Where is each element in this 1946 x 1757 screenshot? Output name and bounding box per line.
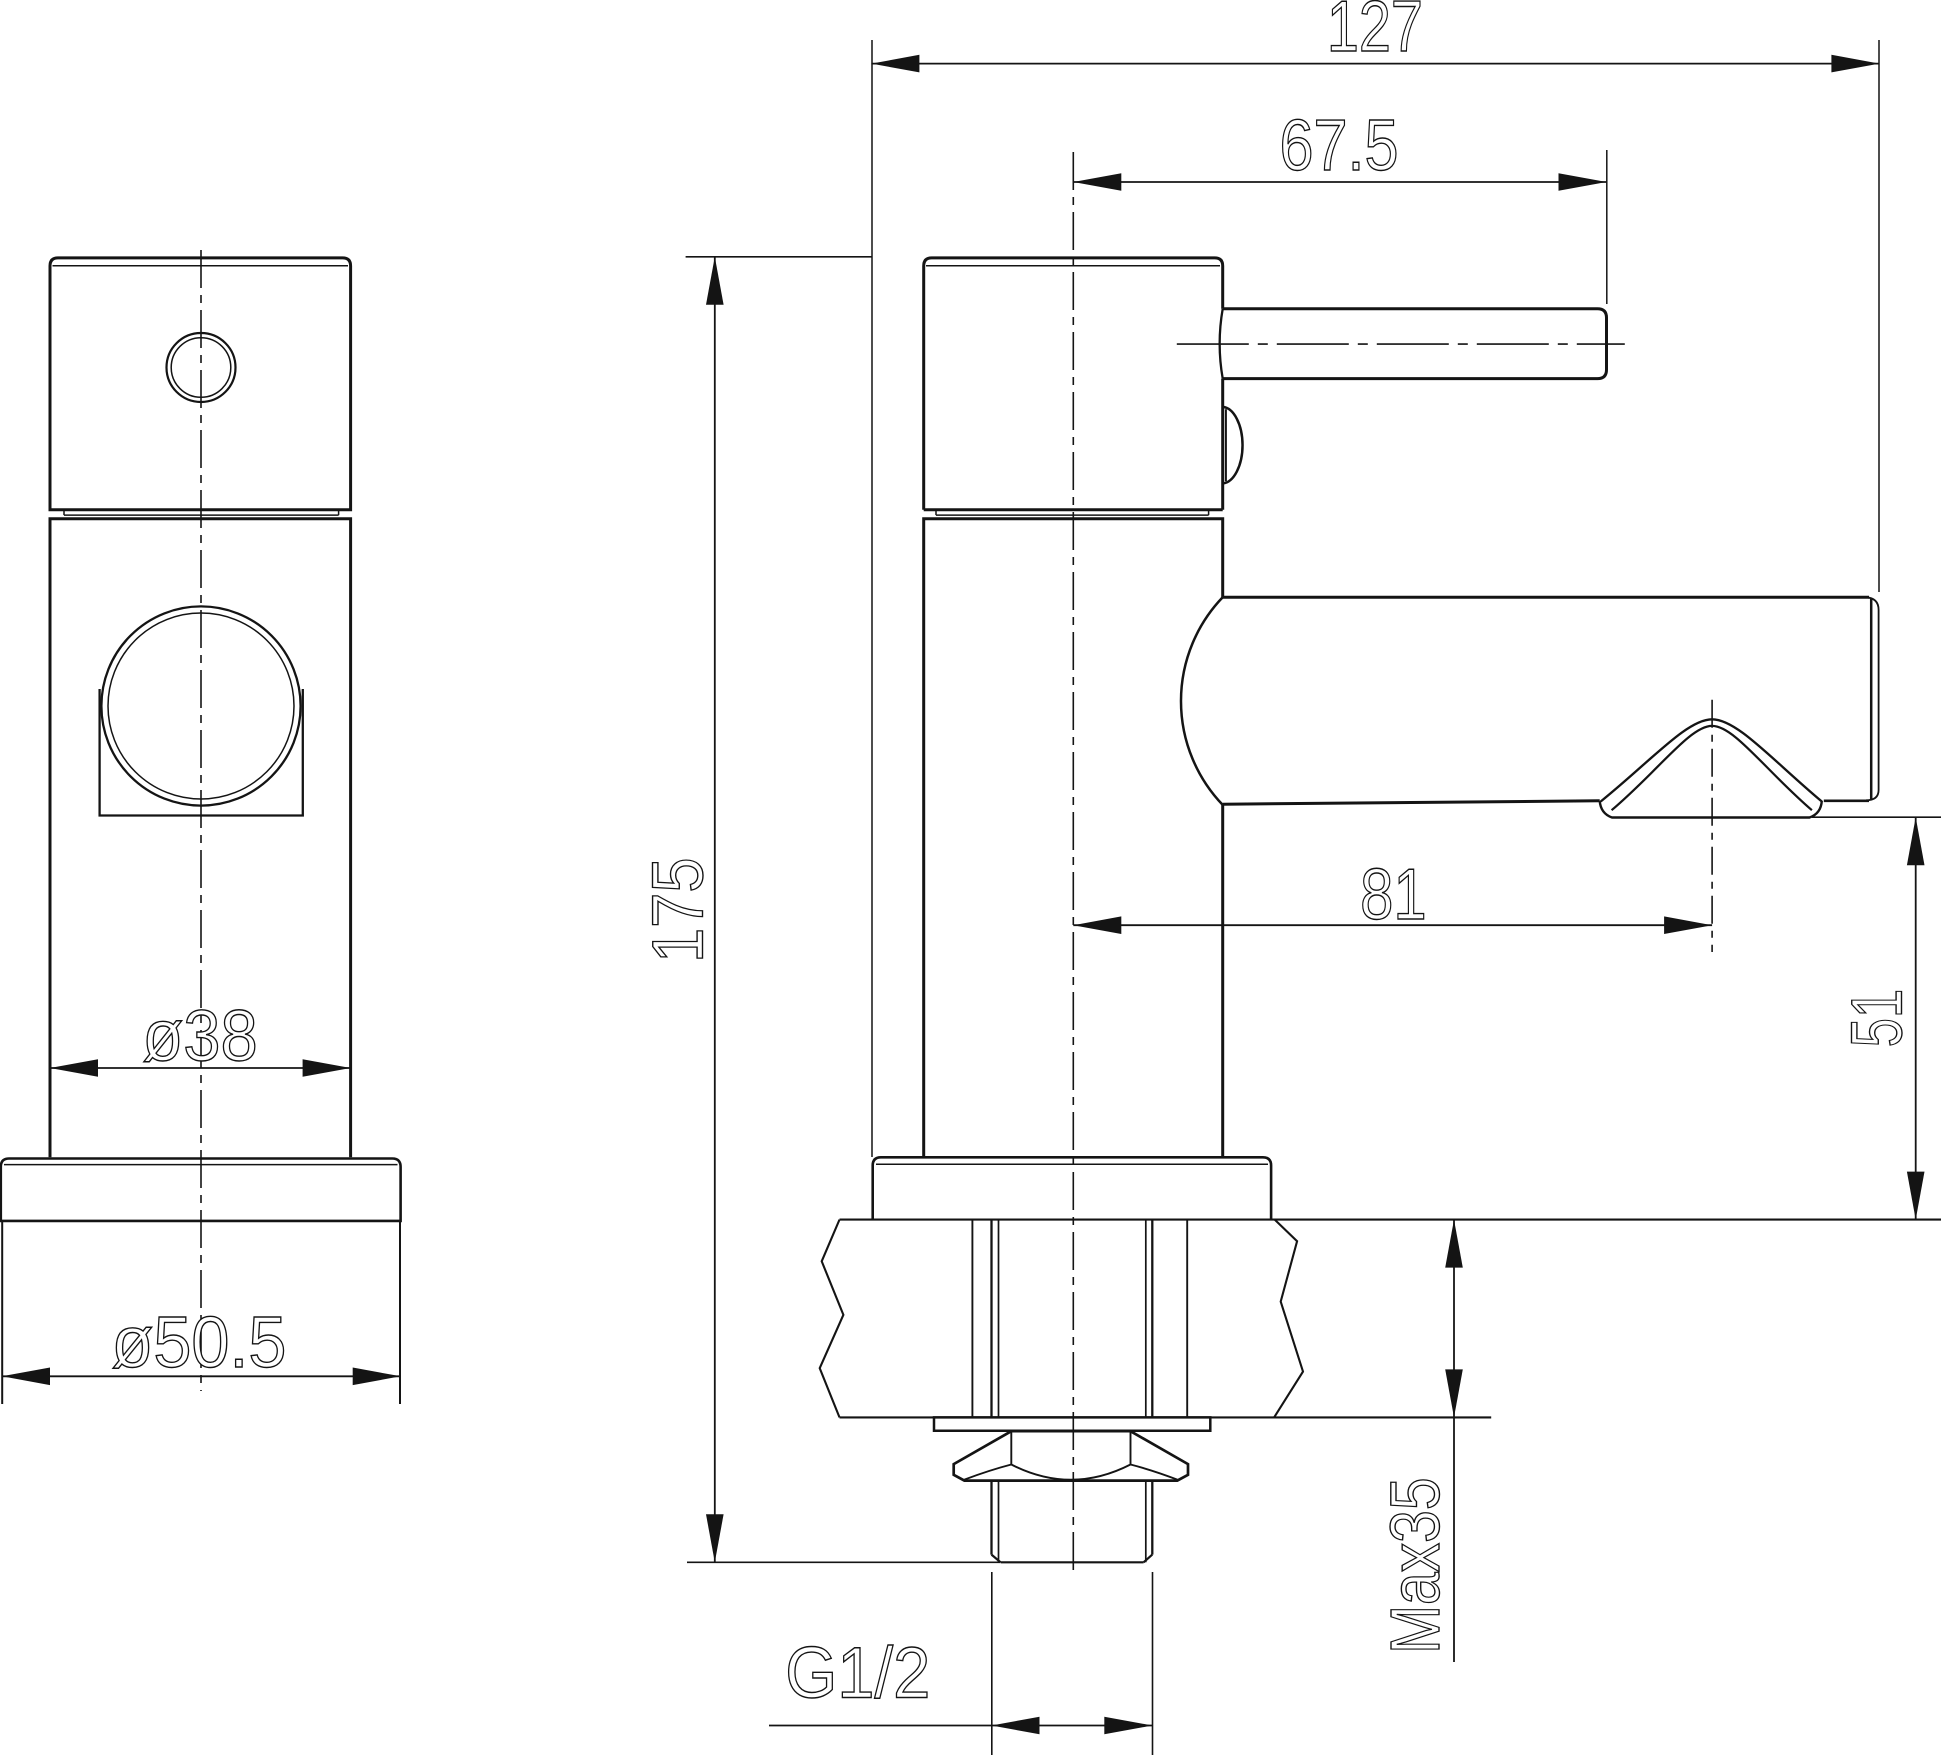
- svg-text:ø50.5: ø50.5: [112, 1301, 287, 1382]
- svg-text:Max35: Max35: [1375, 1477, 1454, 1653]
- svg-text:175: 175: [639, 857, 719, 963]
- svg-text:81: 81: [1360, 855, 1426, 936]
- svg-text:127: 127: [1327, 0, 1423, 66]
- svg-text:51: 51: [1838, 989, 1918, 1047]
- svg-text:G1/2: G1/2: [785, 1632, 930, 1713]
- svg-text:ø38: ø38: [142, 995, 257, 1076]
- svg-text:67.5: 67.5: [1279, 106, 1398, 186]
